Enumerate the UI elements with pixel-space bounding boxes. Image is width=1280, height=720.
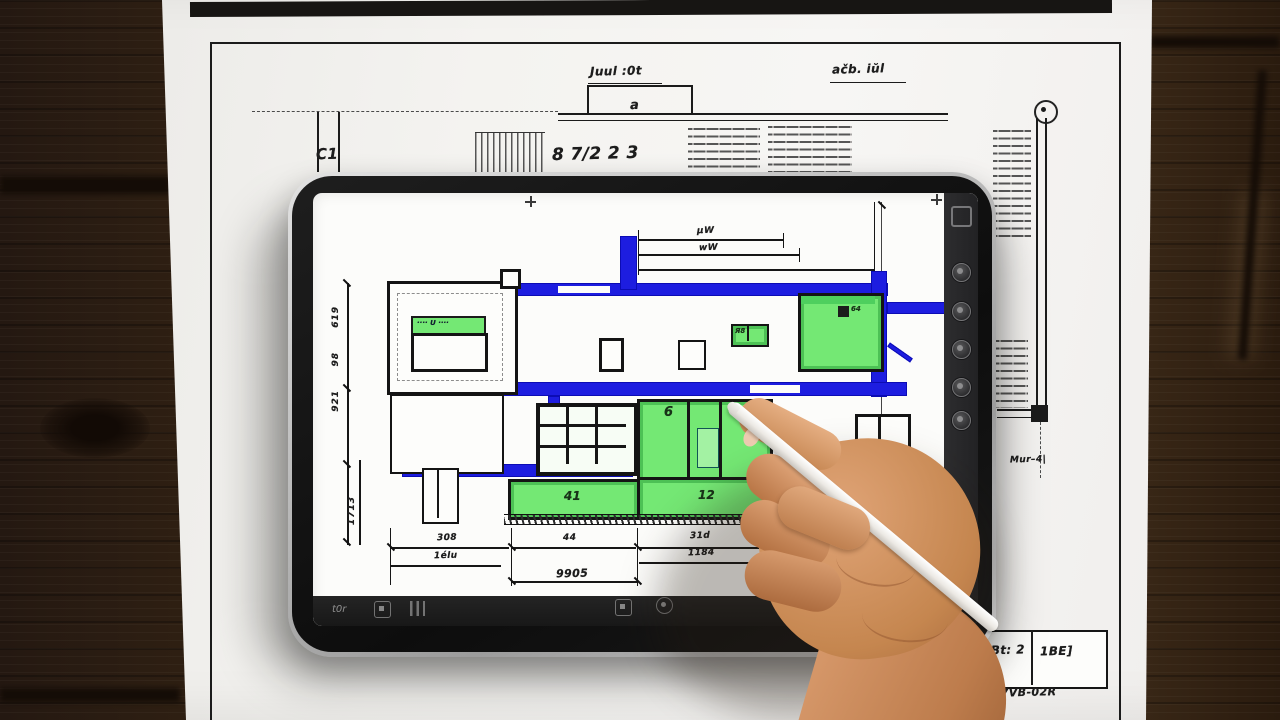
tool-eraser-button[interactable] <box>952 340 971 359</box>
dimension-line <box>512 547 636 549</box>
roof-outline <box>587 85 693 87</box>
dashed-wall-line <box>1040 422 1041 478</box>
capture-icon[interactable] <box>615 599 632 616</box>
frame-border-right <box>1119 42 1121 720</box>
extension-line <box>874 202 875 275</box>
legend-box <box>411 333 488 372</box>
beam-opening <box>558 286 610 293</box>
window-mullion <box>595 407 598 464</box>
hatched-wall-block <box>475 132 545 173</box>
layers-panel-icon[interactable] <box>951 206 972 227</box>
wall-line <box>997 417 1031 418</box>
window-divider <box>747 326 749 341</box>
paper-dim-label-left: Juul :0t <box>590 63 642 78</box>
room-divider <box>687 402 690 477</box>
extension-line <box>783 233 784 248</box>
crosshair-mark <box>931 194 942 205</box>
extension-line <box>511 528 512 586</box>
wall-line <box>558 113 948 115</box>
wood-plank-gap <box>1150 36 1280 48</box>
wood-plank-gap <box>0 688 180 702</box>
room-label-upper-right: 64 <box>851 305 861 313</box>
capture-icon-dot <box>620 604 625 609</box>
paper-dim-label-right: ačb. iŭl <box>832 61 885 76</box>
door-panel <box>678 340 706 370</box>
wood-plank-gap <box>0 176 170 194</box>
cabinet <box>422 468 459 524</box>
window-mullion <box>540 445 626 448</box>
notes-column <box>993 130 1031 242</box>
room-lower-left <box>390 394 504 474</box>
tool-pencil-button[interactable] <box>952 302 971 321</box>
title-block-cell-b: 1BE] <box>1040 644 1073 659</box>
dim-label-left-3: 921 <box>331 390 341 412</box>
dim-label-left-4: 1713 <box>347 496 357 525</box>
room-label-center: 6 <box>664 405 673 420</box>
tool-color-button[interactable] <box>952 411 971 430</box>
wall-section-line <box>1045 118 1047 408</box>
ruler-icon[interactable] <box>410 601 425 616</box>
beam-opening <box>750 385 800 393</box>
blue-stair-line <box>887 342 913 362</box>
photo-scene: { "colors": { "wood": "#2e1f12", "paper"… <box>0 0 1280 720</box>
window-grid <box>536 403 638 476</box>
roof-outline <box>587 85 589 114</box>
dimension-line <box>638 254 799 256</box>
blue-column <box>620 236 637 290</box>
extension-line <box>390 528 391 585</box>
room-inner-panel <box>697 428 719 468</box>
roof-mark: a <box>630 98 640 113</box>
roof-outline <box>691 85 693 114</box>
dimension-line <box>638 269 874 271</box>
room-divider <box>719 402 722 477</box>
dim-label-top-2: wW <box>699 243 718 253</box>
dim-label-r1b: 44 <box>563 533 577 543</box>
chimney <box>500 269 521 289</box>
cabinet-divider <box>437 470 439 518</box>
wall-section-line <box>1036 118 1038 408</box>
room-dark-square <box>838 306 849 317</box>
notes-paragraph <box>768 126 852 174</box>
window-mullion <box>540 424 626 427</box>
extension-line <box>637 528 638 586</box>
frame-border-top <box>210 42 1120 44</box>
tool-shape-button[interactable] <box>952 378 971 397</box>
window-mullion <box>566 407 569 464</box>
bar-right-label: 12 <box>698 488 715 502</box>
crosshair-mark <box>525 196 536 207</box>
room-top-strip <box>801 296 875 304</box>
grid-icon[interactable] <box>374 601 391 618</box>
dashed-dim-line <box>252 111 558 112</box>
paper-header-band <box>190 0 1112 17</box>
grid-icon-dot <box>379 606 384 611</box>
extension-line <box>799 248 800 262</box>
column-mark: C1 <box>316 145 339 164</box>
dimension-line <box>511 581 637 583</box>
wall-corner-block <box>1031 405 1048 422</box>
notes-paragraph <box>688 128 760 176</box>
wall-line <box>558 120 948 121</box>
tool-pen-button[interactable] <box>952 263 971 282</box>
dimension-line <box>638 239 783 241</box>
column-line <box>338 112 340 172</box>
green-window-pair: Я8 <box>731 324 769 347</box>
wall-niche <box>599 338 624 372</box>
extension-line <box>638 230 639 275</box>
wood-knot <box>40 398 150 458</box>
toolbar-menu-label[interactable]: t0r <box>332 604 346 615</box>
green-header-text: ···· U ···· <box>417 319 449 327</box>
dim-label-left-1: 619 <box>331 306 341 328</box>
wall-line <box>997 409 1031 411</box>
title-block-divider <box>1031 630 1033 685</box>
dim-line <box>830 82 906 83</box>
bar-left-label: 41 <box>564 489 581 503</box>
dimension-line <box>391 565 501 567</box>
wall-note: Mur–4| <box>1010 455 1047 466</box>
dimension-line <box>390 547 509 549</box>
dim-label-r1a: 308 <box>437 533 457 544</box>
dim-label-left-2: 98 <box>331 352 341 367</box>
detail-circle-dot <box>1041 107 1046 112</box>
green-room-upper-right: 64 <box>798 293 884 372</box>
dim-label-r2a: 1élu <box>434 551 458 562</box>
level-mark: 8 7/2 2 3 <box>552 143 639 165</box>
dim-tick <box>878 201 886 209</box>
window-pair-label: Я8 <box>735 327 745 335</box>
dimension-line-left2 <box>359 460 361 545</box>
dim-label-top-1: μW <box>697 226 715 236</box>
frame-border-left <box>210 42 212 720</box>
dim-label-r3: 9905 <box>556 567 589 581</box>
